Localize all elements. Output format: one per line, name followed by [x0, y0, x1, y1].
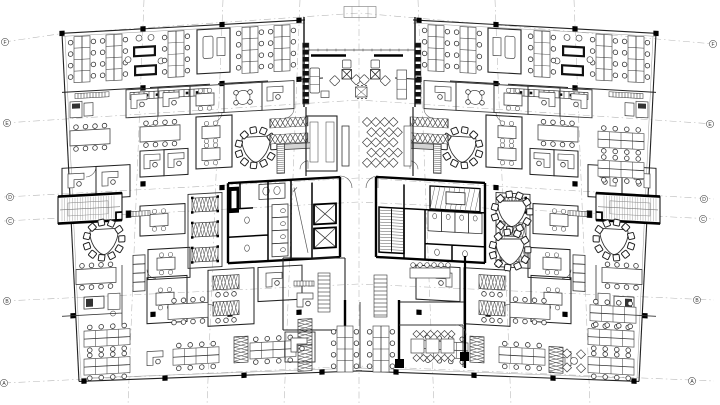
svg-text:C: C: [8, 219, 12, 225]
svg-text:D: D: [702, 197, 706, 203]
svg-text:F: F: [711, 42, 714, 48]
svg-text:D: D: [8, 195, 12, 201]
svg-text:F: F: [3, 40, 6, 46]
svg-text:C: C: [701, 217, 705, 223]
